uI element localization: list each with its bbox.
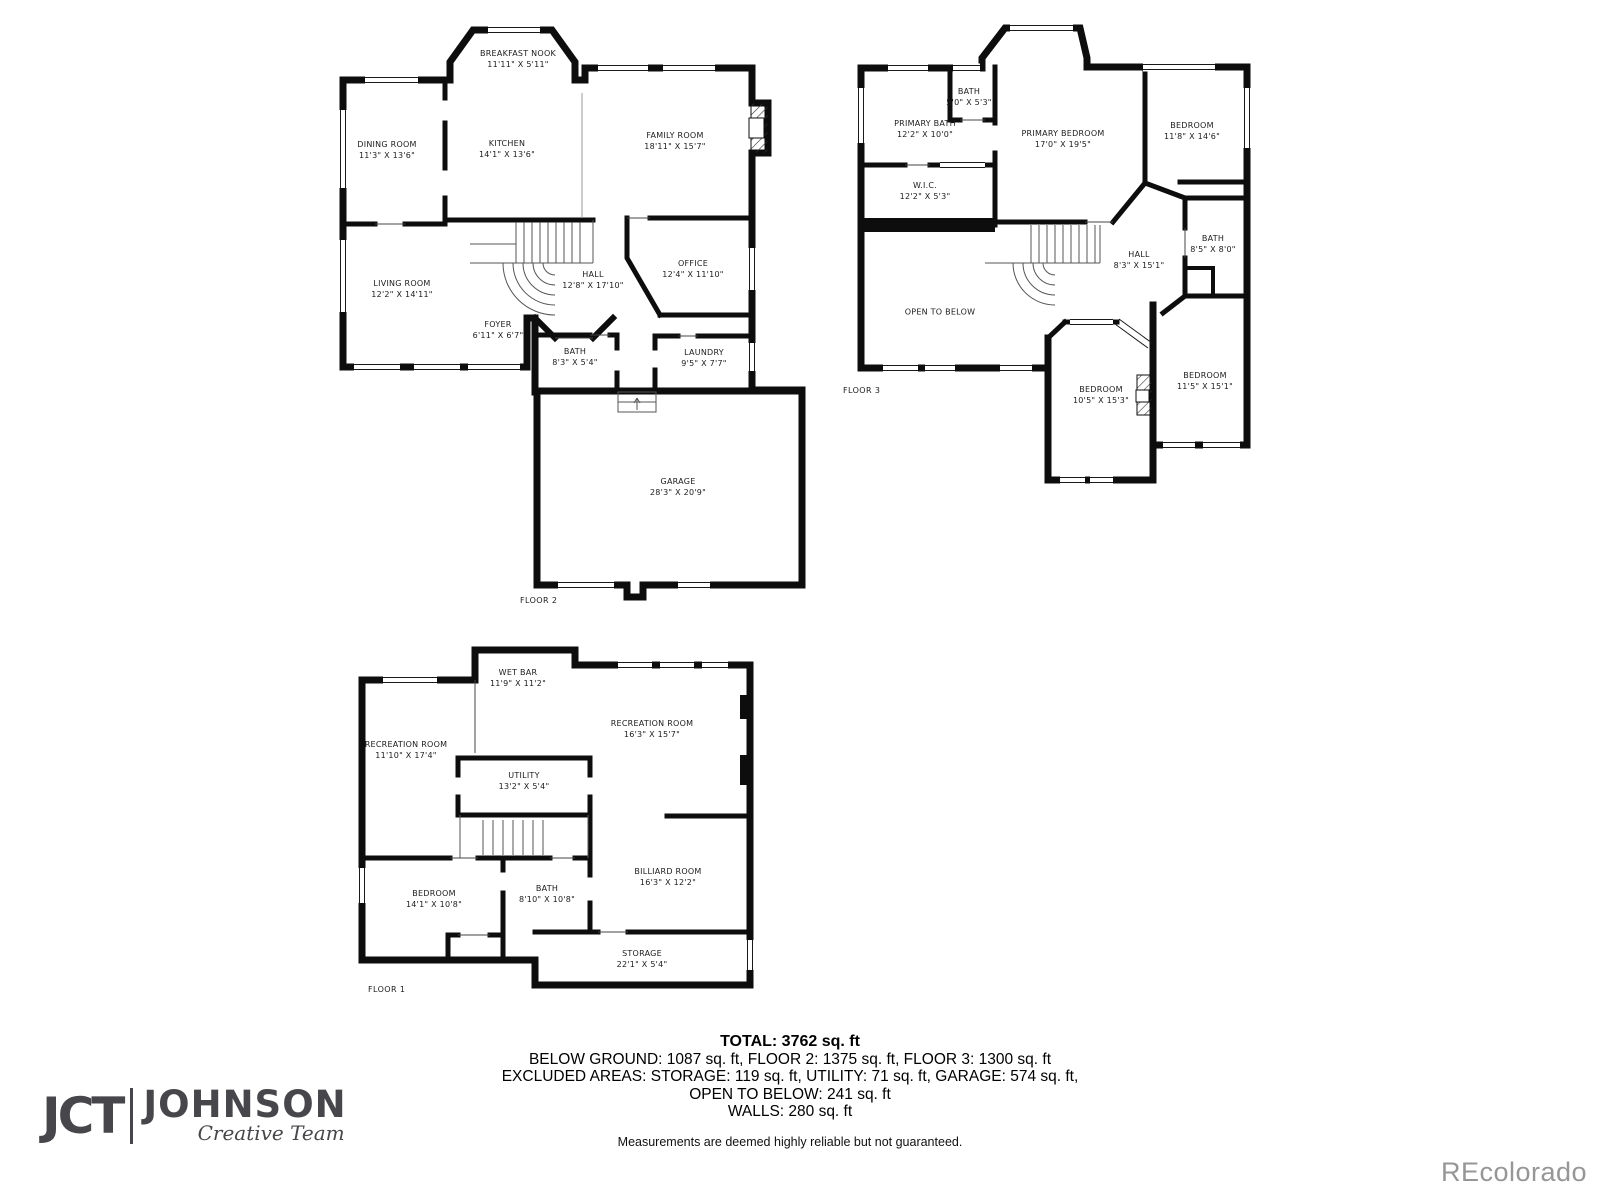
floor-2-plan: BREAKFAST NOOK11'11" X 5'11"DINING ROOM1…	[330, 18, 810, 608]
floor-plan-page: { "floors": [ { "id": "floor-2", "label"…	[0, 0, 1600, 1200]
room-label: BEDROOM10'5" X 15'3"	[1073, 385, 1129, 407]
recolorado-watermark: REcolorado	[1441, 1157, 1587, 1188]
room-label: FOYER6'11" X 6'7"	[473, 320, 524, 342]
room-label: RECREATION ROOM11'10" X 17'4"	[365, 740, 448, 762]
room-label: DINING ROOM11'3" X 13'6"	[357, 140, 416, 162]
summary-total: TOTAL: 3762 sq. ft	[0, 1033, 1580, 1051]
floor-2-tag: FLOOR 2	[520, 596, 557, 605]
room-label: BEDROOM14'1" X 10'8"	[406, 889, 462, 911]
floor-1-plan: WET BAR11'9" X 11'2"RECREATION ROOM11'10…	[350, 635, 760, 1000]
logo-mark: JCT	[42, 1087, 122, 1145]
logo-divider	[130, 1088, 133, 1144]
room-label: BATH5'0" X 5'3"	[946, 87, 991, 109]
johnson-creative-team-logo: JCT JOHNSON Creative Team	[42, 1086, 347, 1145]
floor-3-plan: PRIMARY BATH12'2" X 10'0"BATH5'0" X 5'3"…	[845, 18, 1260, 493]
room-label: STORAGE22'1" X 5'4"	[617, 949, 668, 971]
room-label: OFFICE12'4" X 11'10"	[662, 259, 723, 281]
floor-2-room-labels: BREAKFAST NOOK11'11" X 5'11"DINING ROOM1…	[330, 18, 810, 608]
room-label: HALL12'8" X 17'10"	[562, 270, 623, 292]
room-label: WET BAR11'9" X 11'2"	[490, 668, 546, 690]
room-label: BATH8'5" X 8'0"	[1190, 234, 1235, 256]
floor-3-tag: FLOOR 3	[843, 386, 880, 395]
room-label: BREAKFAST NOOK11'11" X 5'11"	[480, 49, 556, 71]
logo-name: JOHNSON	[143, 1086, 346, 1123]
room-label: PRIMARY BEDROOM17'0" X 19'5"	[1021, 129, 1104, 151]
summary-line: BELOW GROUND: 1087 sq. ft, FLOOR 2: 1375…	[0, 1051, 1580, 1069]
room-label: BILLIARD ROOM16'3" X 12'2"	[634, 867, 701, 889]
room-label: PRIMARY BATH12'2" X 10'0"	[894, 119, 956, 141]
room-label: BEDROOM11'5" X 15'1"	[1177, 371, 1233, 393]
room-label: BATH8'10" X 10'8"	[519, 884, 575, 906]
room-label: LIVING ROOM12'2" X 14'11"	[371, 279, 432, 301]
room-label: BATH8'3" X 5'4"	[552, 347, 597, 369]
room-label: GARAGE28'3" X 20'9"	[650, 477, 706, 499]
room-label: W.I.C.12'2" X 5'3"	[900, 181, 951, 203]
room-label: KITCHEN14'1" X 13'6"	[479, 139, 535, 161]
floor-1-room-labels: WET BAR11'9" X 11'2"RECREATION ROOM11'10…	[350, 635, 760, 1000]
room-label: FAMILY ROOM18'11" X 15'7"	[644, 131, 705, 153]
room-label: BEDROOM11'8" X 14'6"	[1164, 121, 1220, 143]
room-label: HALL8'3" X 15'1"	[1114, 250, 1165, 272]
room-label: LAUNDRY9'5" X 7'7"	[681, 348, 726, 370]
floor-3-room-labels: PRIMARY BATH12'2" X 10'0"BATH5'0" X 5'3"…	[845, 18, 1260, 493]
room-label: UTILITY13'2" X 5'4"	[499, 771, 550, 793]
room-label: OPEN TO BELOW	[905, 308, 976, 319]
floor-1-tag: FLOOR 1	[368, 985, 405, 994]
room-label: RECREATION ROOM16'3" X 15'7"	[611, 719, 694, 741]
